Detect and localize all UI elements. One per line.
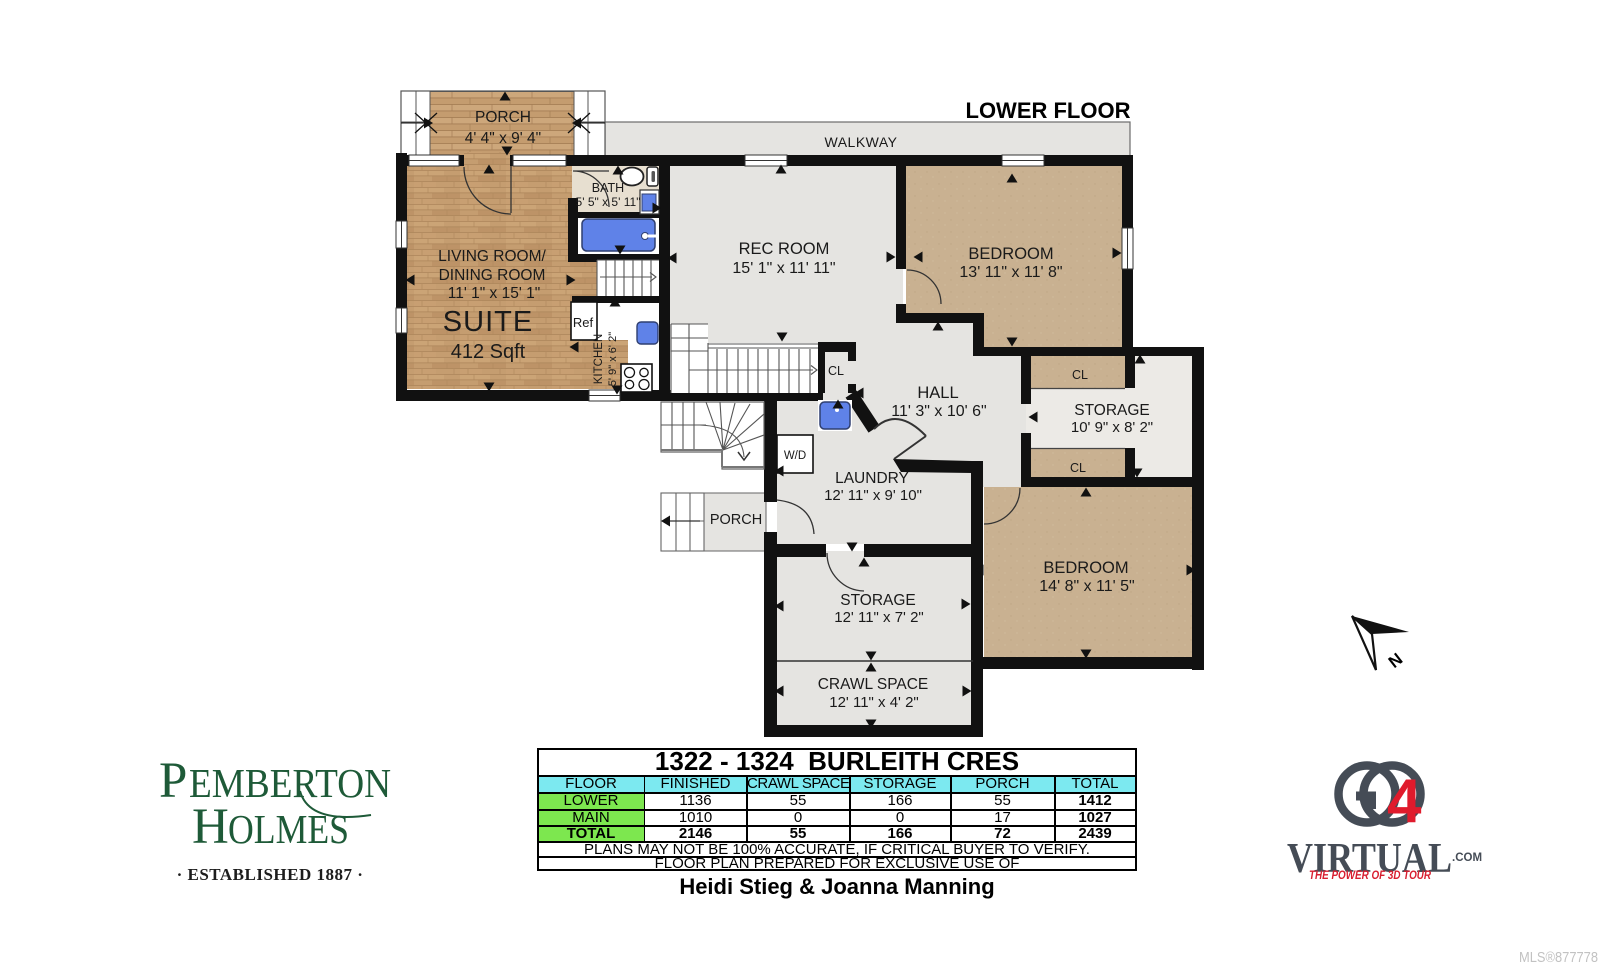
svg-text:12' 11" x 7' 2": 12' 11" x 7' 2" [834, 609, 924, 626]
svg-text:SUITE: SUITE [443, 306, 533, 338]
svg-text:· ESTABLISHED 1887 ·: · ESTABLISHED 1887 · [177, 865, 364, 884]
svg-text:CL: CL [1070, 461, 1086, 475]
svg-text:5' 5" x 5' 11": 5' 5" x 5' 11" [576, 195, 641, 209]
svg-text:BATH: BATH [592, 181, 624, 195]
svg-text:PORCH: PORCH [710, 512, 762, 528]
svg-text:LOWER FLOOR: LOWER FLOOR [966, 98, 1131, 123]
svg-text:13' 11" x 11' 8": 13' 11" x 11' 8" [959, 264, 1062, 281]
svg-text:DINING ROOM: DINING ROOM [439, 267, 546, 284]
svg-text:4: 4 [1387, 767, 1422, 836]
svg-text:CL: CL [1072, 368, 1088, 382]
svg-text:412 Sqft: 412 Sqft [451, 341, 526, 363]
svg-text:CL: CL [828, 364, 844, 378]
svg-text:W/D: W/D [784, 450, 806, 462]
svg-text:Ref: Ref [573, 315, 594, 330]
svg-text:14' 8" x 11' 5": 14' 8" x 11' 5" [1039, 578, 1134, 595]
svg-text:11' 1" x 15' 1": 11' 1" x 15' 1" [448, 285, 540, 302]
svg-text:KITCHEN: KITCHEN [593, 334, 605, 384]
svg-text:N: N [1385, 649, 1406, 672]
svg-text:BEDROOM: BEDROOM [968, 245, 1053, 263]
svg-text:5' 9" x 6' 2": 5' 9" x 6' 2" [607, 332, 619, 386]
svg-text:4' 4" x 9' 4": 4' 4" x 9' 4" [465, 130, 541, 147]
svg-text:LAUNDRY: LAUNDRY [835, 470, 909, 487]
svg-text:10' 9" x 8' 2": 10' 9" x 8' 2" [1071, 419, 1153, 436]
svg-text:11' 3" x 10' 6": 11' 3" x 10' 6" [891, 403, 986, 420]
svg-text:REC ROOM: REC ROOM [739, 240, 830, 258]
svg-text:PORCH: PORCH [475, 109, 531, 126]
svg-text:12' 11" x 4' 2": 12' 11" x 4' 2" [829, 694, 919, 711]
svg-text:STORAGE: STORAGE [840, 592, 916, 609]
svg-text:THE POWER OF 3D TOUR: THE POWER OF 3D TOUR [1309, 870, 1432, 882]
svg-text:CRAWL SPACE: CRAWL SPACE [818, 676, 929, 693]
svg-text:12' 11" x 9' 10": 12' 11" x 9' 10" [824, 487, 922, 504]
svg-text:STORAGE: STORAGE [1074, 402, 1150, 419]
svg-text:WALKWAY: WALKWAY [825, 134, 898, 150]
svg-text:MLS®877778: MLS®877778 [1519, 950, 1598, 965]
svg-text:LIVING ROOM/: LIVING ROOM/ [438, 248, 546, 265]
svg-text:P: P [159, 753, 187, 809]
svg-text:HALL: HALL [917, 384, 958, 402]
svg-text:15' 1" x 11' 11": 15' 1" x 11' 11" [732, 260, 835, 277]
svg-text:H: H [192, 799, 229, 855]
svg-text:.COM: .COM [1452, 852, 1482, 864]
svg-text:BEDROOM: BEDROOM [1043, 559, 1128, 577]
svg-text:OLMES: OLMES [228, 806, 349, 852]
